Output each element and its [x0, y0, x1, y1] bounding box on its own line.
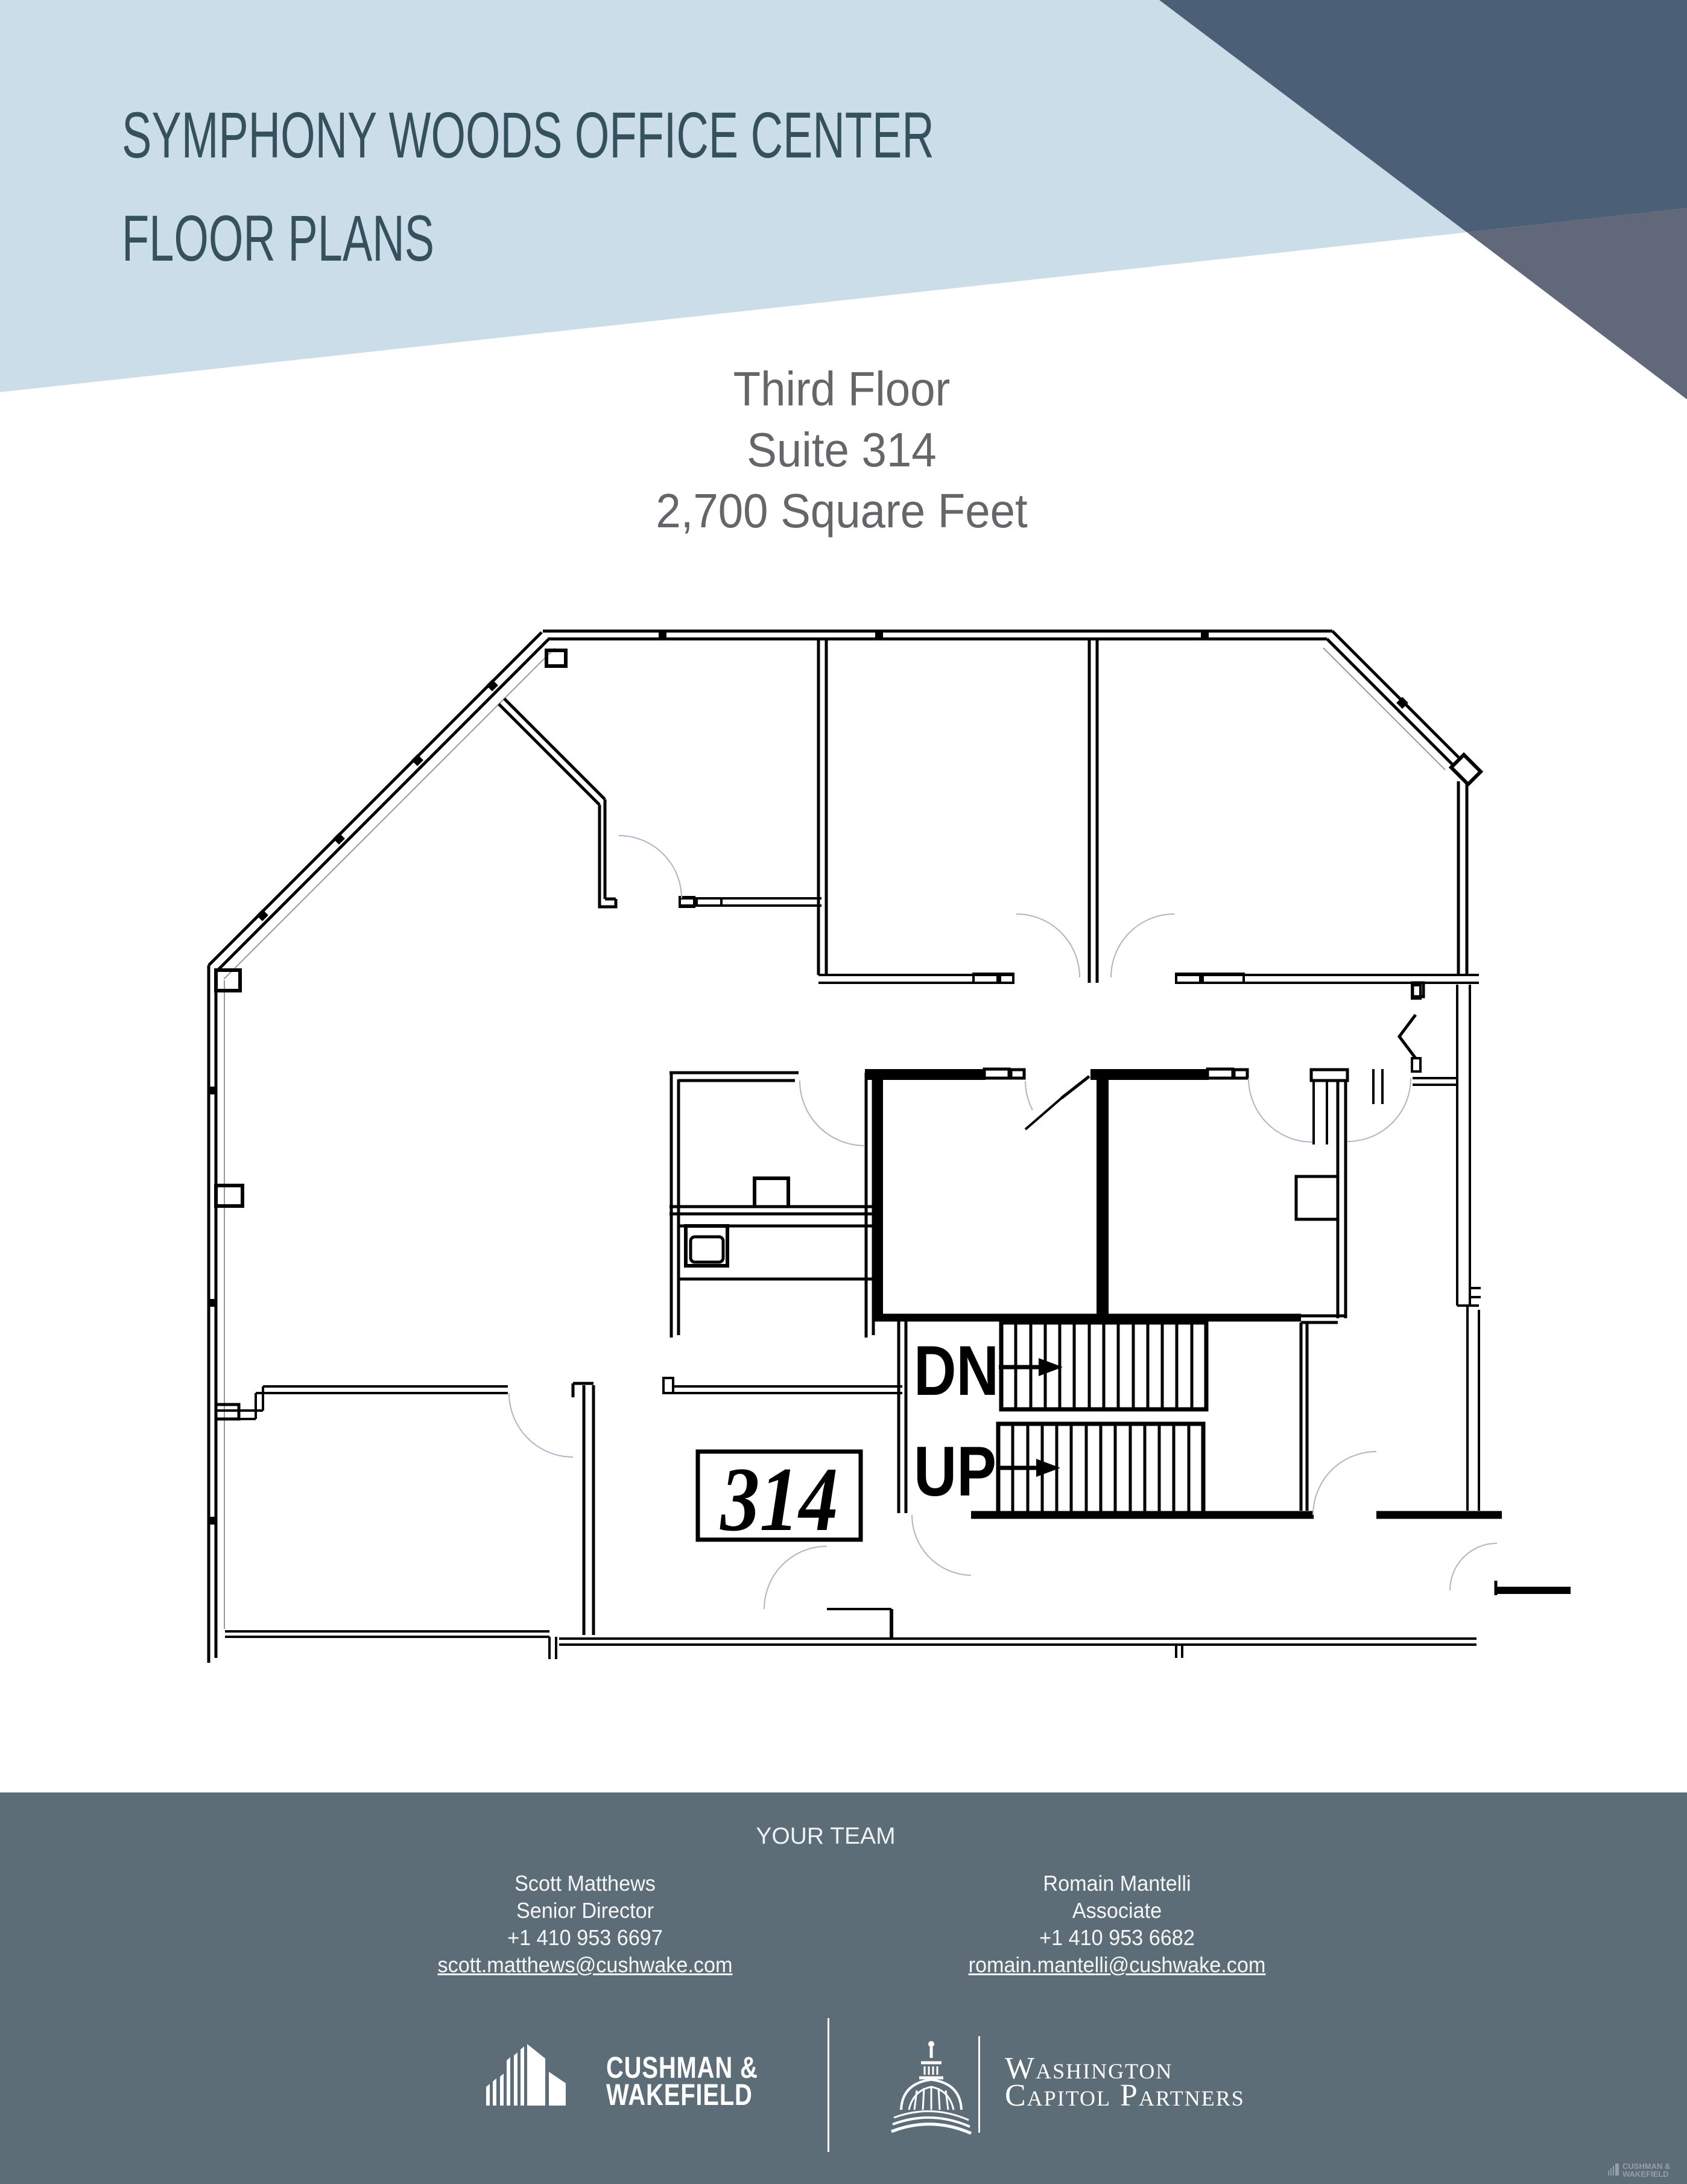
- svg-text:UP: UP: [914, 1432, 996, 1511]
- svg-text:DN: DN: [914, 1331, 999, 1410]
- svg-text:314: 314: [720, 1449, 838, 1550]
